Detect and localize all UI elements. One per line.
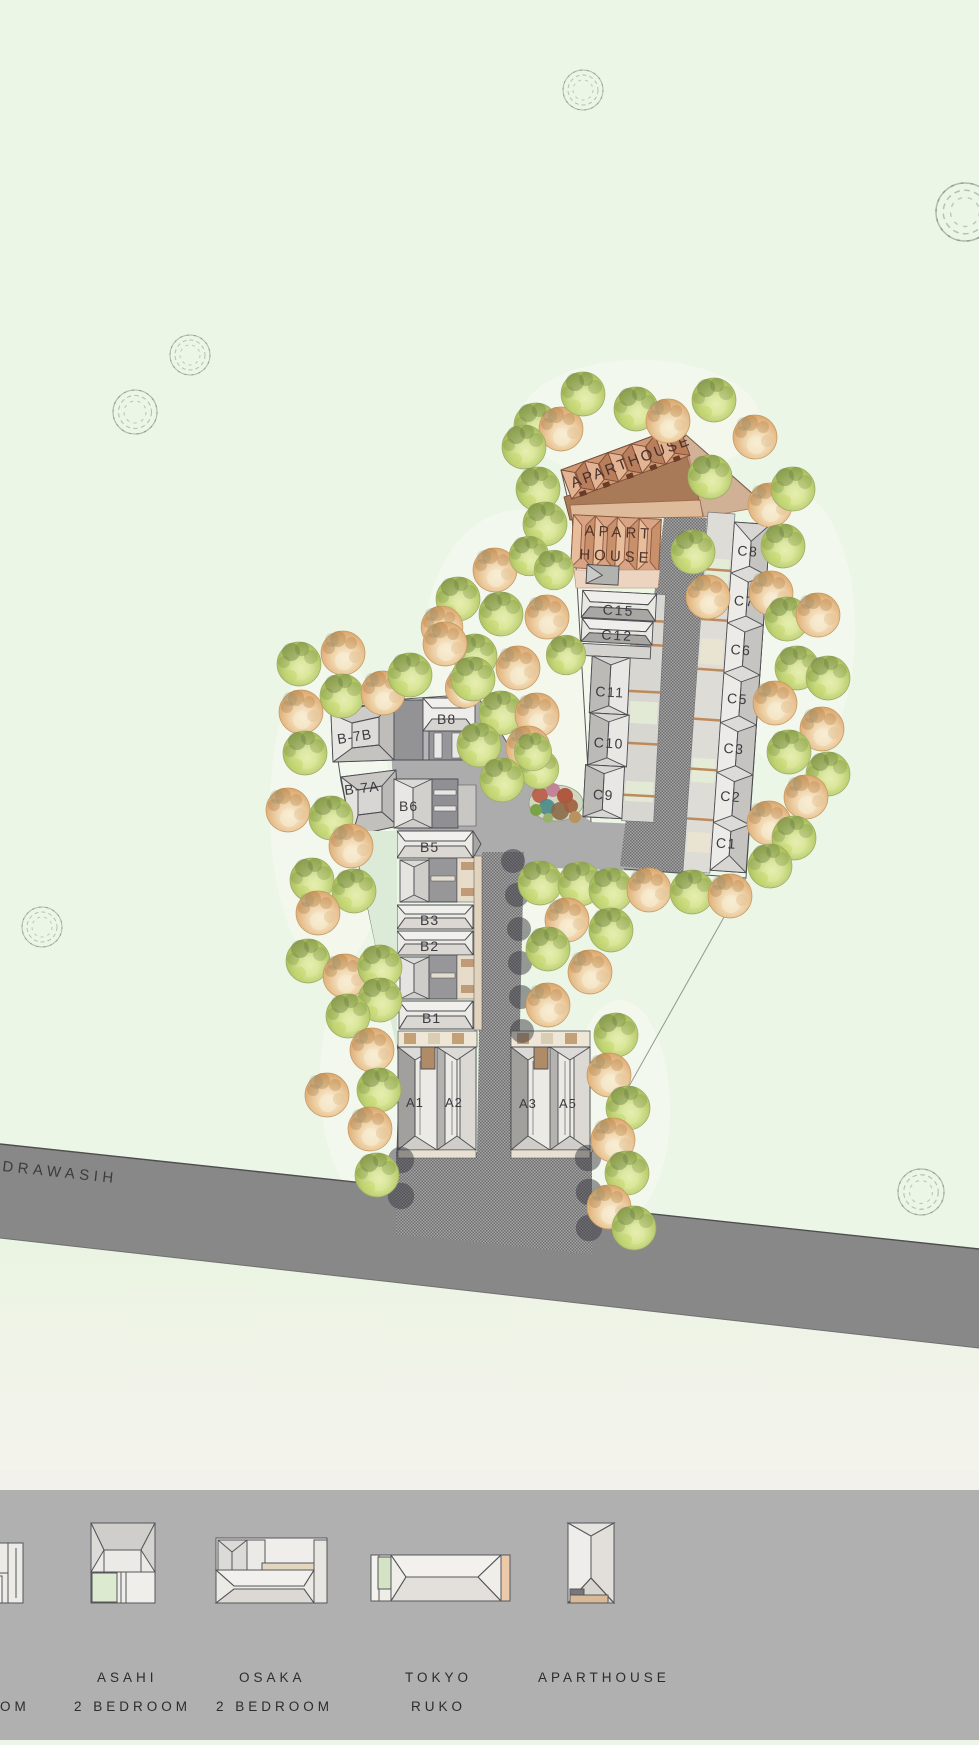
svg-text:TOKYO: TOKYO bbox=[405, 1670, 472, 1685]
svg-text:B1: B1 bbox=[422, 1010, 441, 1026]
svg-text:RUKO: RUKO bbox=[411, 1699, 466, 1714]
svg-text:C1: C1 bbox=[715, 835, 737, 852]
svg-text:C5: C5 bbox=[727, 690, 749, 707]
svg-text:OSAKA: OSAKA bbox=[239, 1670, 306, 1685]
svg-text:APARTHOUSE: APARTHOUSE bbox=[538, 1670, 670, 1685]
svg-text:A1: A1 bbox=[406, 1095, 424, 1110]
svg-text:A3: A3 bbox=[519, 1096, 537, 1111]
svg-text:APART: APART bbox=[584, 522, 653, 543]
svg-text:2 BEDROOM: 2 BEDROOM bbox=[74, 1699, 191, 1714]
svg-text:B2: B2 bbox=[420, 938, 439, 954]
svg-text:C3: C3 bbox=[723, 740, 745, 757]
svg-text:2 BEDROOM: 2 BEDROOM bbox=[216, 1699, 333, 1714]
svg-text:B5: B5 bbox=[420, 839, 439, 855]
svg-text:OM: OM bbox=[0, 1699, 30, 1714]
svg-text:C15: C15 bbox=[602, 601, 634, 619]
svg-text:C9: C9 bbox=[593, 786, 615, 803]
svg-text:C10: C10 bbox=[593, 734, 624, 752]
svg-text:C8: C8 bbox=[737, 542, 759, 559]
svg-text:C2: C2 bbox=[720, 788, 742, 805]
svg-text:C6: C6 bbox=[730, 641, 752, 658]
svg-text:C11: C11 bbox=[595, 683, 625, 701]
svg-text:ASAHI: ASAHI bbox=[97, 1670, 158, 1685]
svg-text:B3: B3 bbox=[420, 912, 439, 928]
svg-text:A2: A2 bbox=[445, 1095, 463, 1110]
svg-text:A5: A5 bbox=[559, 1096, 577, 1111]
svg-text:C12: C12 bbox=[601, 626, 633, 644]
svg-text:B6: B6 bbox=[399, 798, 418, 814]
svg-text:B8: B8 bbox=[437, 711, 456, 727]
